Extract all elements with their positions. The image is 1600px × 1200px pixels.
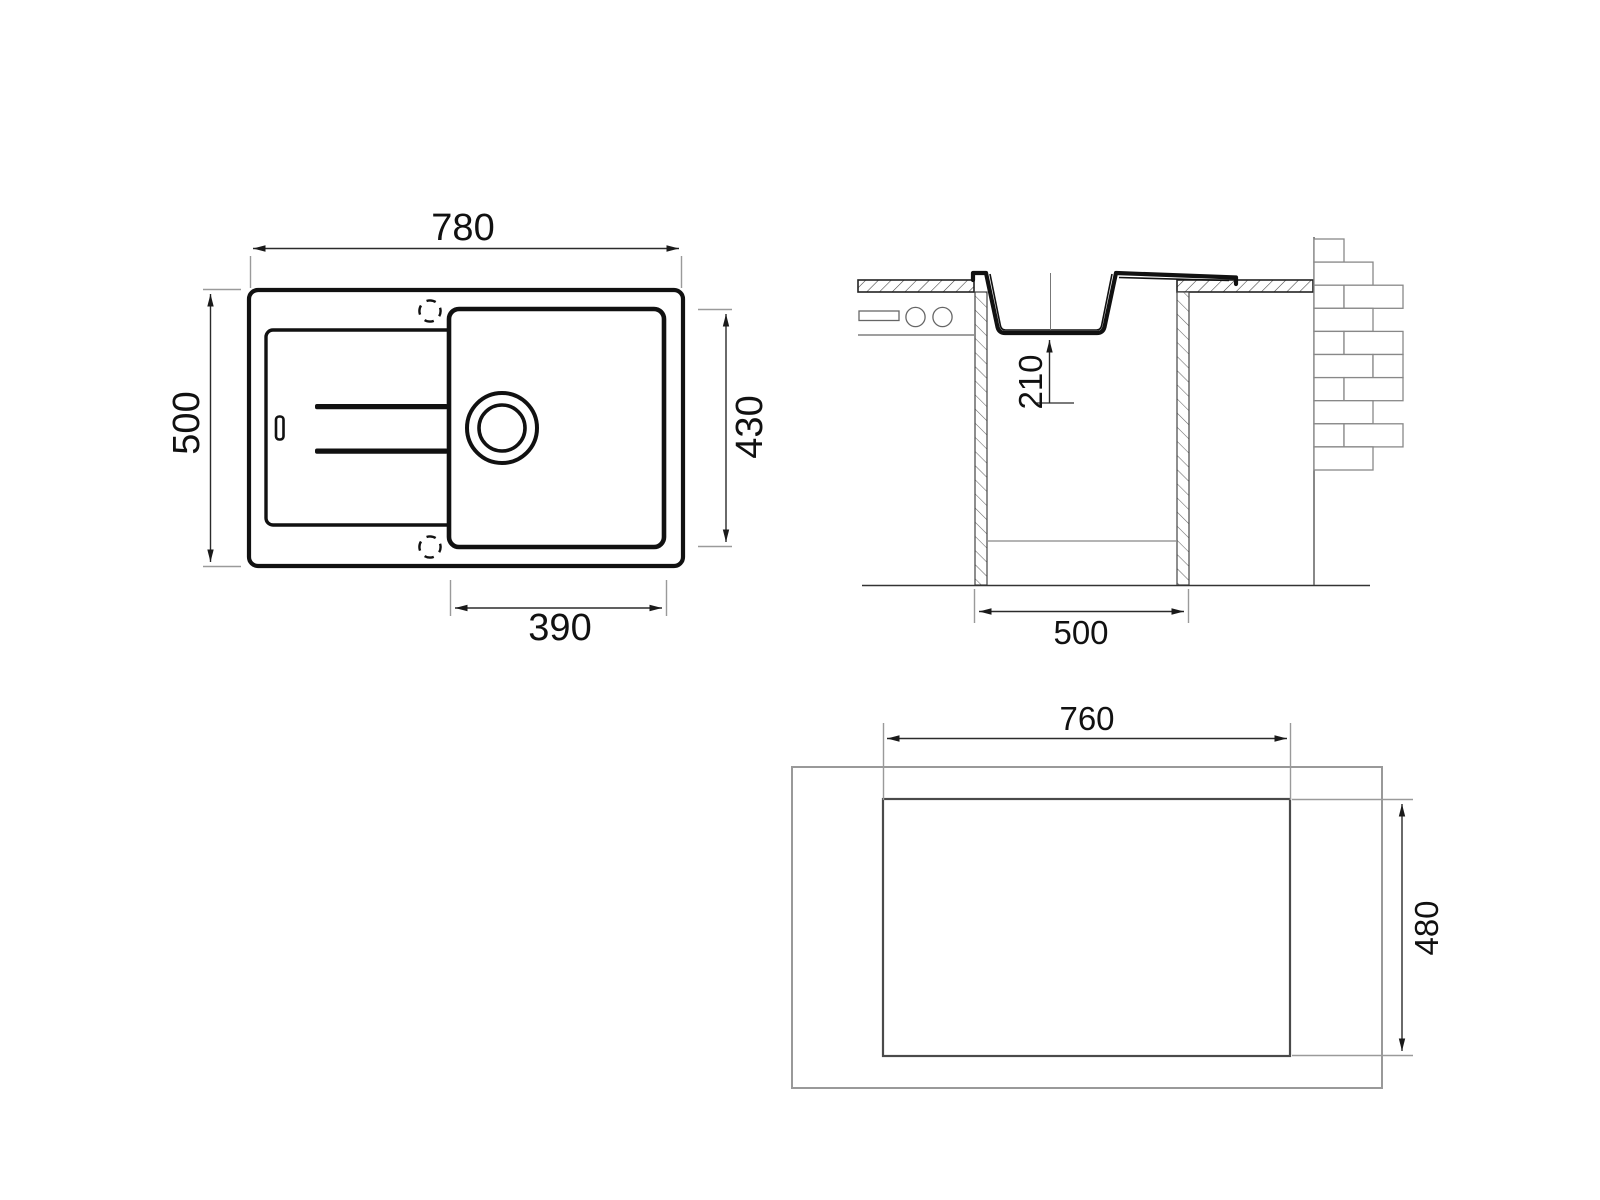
dim-label-overall-width: 780 xyxy=(431,207,494,249)
appliance-knob xyxy=(933,307,952,326)
cutout-template-view: 760 480 xyxy=(792,700,1445,1088)
drawing-sheet: 780 500 430 390 xyxy=(0,0,1600,1200)
drainboard-groove xyxy=(315,449,448,454)
brick xyxy=(1344,378,1403,401)
cutout-outline xyxy=(883,799,1290,1056)
brick xyxy=(1314,378,1344,401)
brick xyxy=(1314,239,1344,262)
countertop-right xyxy=(1177,280,1313,292)
tap-hole-dashed-circle-bottom xyxy=(419,536,440,557)
brick xyxy=(1344,285,1403,308)
brick xyxy=(1314,331,1344,354)
brick xyxy=(1314,355,1373,378)
appliance-handle xyxy=(859,311,899,321)
brick xyxy=(1314,447,1373,470)
dim-label-bowl-width: 390 xyxy=(528,607,591,649)
dim-label-bowl-depth: 210 xyxy=(1012,354,1049,409)
brick xyxy=(1314,424,1344,447)
brick xyxy=(1373,355,1403,378)
dimension-bowl-length: 430 xyxy=(698,310,771,547)
brick-wall xyxy=(1314,239,1403,470)
countertop-left xyxy=(858,280,974,292)
plan-view: 780 500 430 390 xyxy=(166,207,771,649)
drainboard-outline xyxy=(266,330,460,525)
dimension-overall-depth: 500 xyxy=(166,290,241,567)
appliance-knob xyxy=(906,307,925,326)
dimension-cabinet-width: 500 xyxy=(975,589,1189,651)
sink-technical-drawing: 780 500 430 390 xyxy=(0,0,1600,1200)
dimension-cutout-width: 760 xyxy=(884,700,1291,800)
tap-hole-dashed-circle-top xyxy=(419,300,440,321)
dim-label-cutout-width: 760 xyxy=(1059,700,1114,737)
bowl-outline xyxy=(449,309,664,547)
cabinet-wall-right xyxy=(1177,292,1189,585)
dim-label-bowl-length: 430 xyxy=(729,395,771,458)
overflow-slot xyxy=(276,417,284,440)
brick xyxy=(1314,401,1373,424)
dim-label-cutout-height: 480 xyxy=(1408,900,1445,955)
dimension-bowl-width: 390 xyxy=(451,580,667,649)
brick xyxy=(1314,285,1344,308)
brick xyxy=(1344,331,1403,354)
dimension-overall-width: 780 xyxy=(251,207,682,288)
cabinet-wall-left xyxy=(975,292,987,585)
section-view: 210 500 xyxy=(858,237,1403,651)
brick xyxy=(1314,308,1373,331)
dim-label-overall-depth: 500 xyxy=(166,391,208,454)
dim-label-cabinet-width: 500 xyxy=(1053,614,1108,651)
brick xyxy=(1314,262,1373,285)
brick xyxy=(1344,424,1403,447)
dimension-bowl-depth: 210 xyxy=(1012,340,1074,410)
dimension-cutout-height: 480 xyxy=(1292,800,1445,1056)
drainboard-groove xyxy=(315,404,448,409)
